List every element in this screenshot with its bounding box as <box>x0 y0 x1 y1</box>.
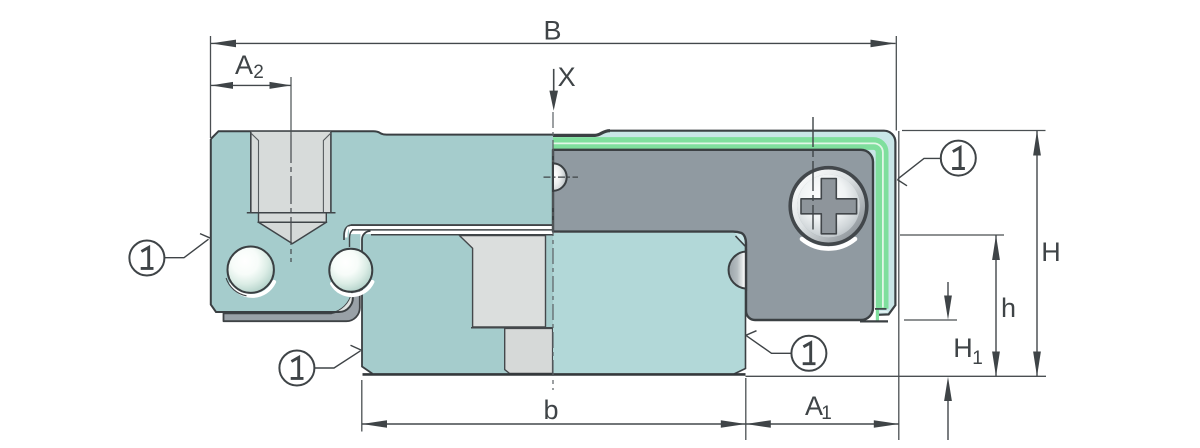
svg-text:H: H <box>953 333 973 363</box>
svg-text:b: b <box>543 395 558 425</box>
svg-text:1: 1 <box>972 348 983 369</box>
svg-text:2: 2 <box>253 62 264 83</box>
svg-text:h: h <box>1001 293 1016 323</box>
svg-text:X: X <box>558 62 576 92</box>
svg-text:A: A <box>235 50 253 80</box>
svg-text:1: 1 <box>821 403 832 424</box>
svg-text:H: H <box>1041 237 1061 267</box>
svg-text:B: B <box>543 15 561 45</box>
